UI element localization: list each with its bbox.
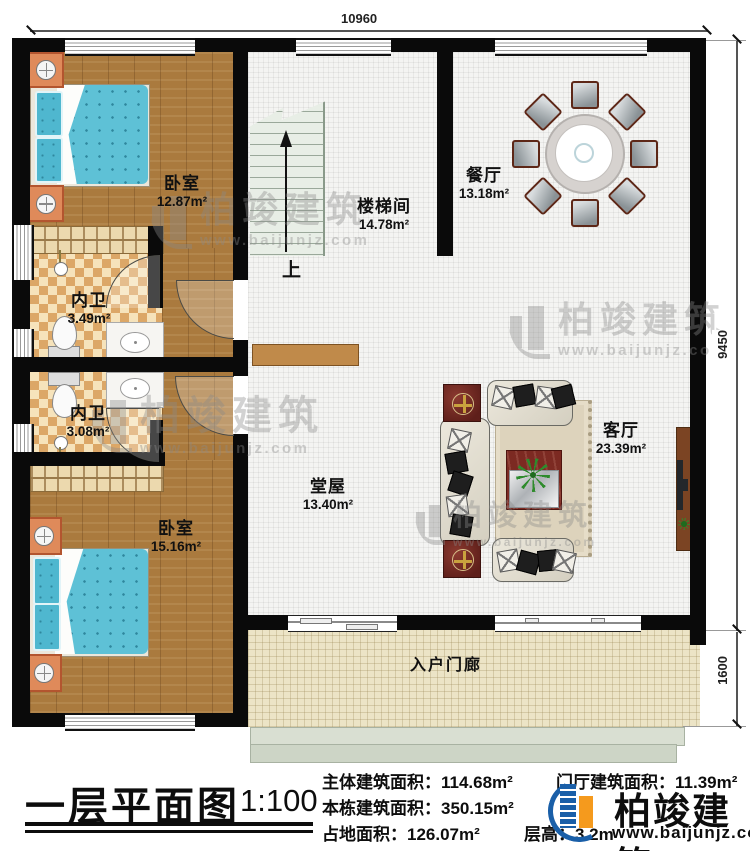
room-area: 15.16m² — [151, 539, 201, 555]
bed-bedroom1 — [30, 84, 150, 187]
stat-building-area: 本栋建筑面积：350.15m² — [322, 794, 514, 819]
bed-bedroom2 — [28, 548, 149, 657]
room-name: 入户门廊 — [410, 657, 482, 675]
room-area: 13.18m² — [459, 186, 509, 202]
lamp-icon — [36, 60, 56, 80]
sofa-pillow — [512, 383, 536, 407]
dimension-right-main-value: 9450 — [712, 330, 733, 359]
window-line — [495, 622, 641, 624]
bath1-drain-icon — [54, 262, 68, 276]
logo-tower-orange — [579, 796, 593, 828]
nightstand — [28, 52, 64, 88]
wall — [12, 713, 65, 727]
wall — [233, 52, 248, 280]
dining-chair — [571, 199, 599, 227]
room-name: 客厅 — [596, 421, 646, 441]
wall — [641, 615, 706, 630]
window-handle — [591, 618, 605, 623]
sliding-door-leaf — [300, 618, 332, 624]
room-name: 堂屋 — [303, 477, 353, 497]
console-table — [252, 344, 359, 366]
room-label-stairwell: 楼梯间 14.78m² — [357, 197, 411, 232]
wall — [437, 52, 453, 256]
room-label-hall: 堂屋 13.40m² — [303, 477, 353, 512]
stat-value: 114.68m² — [441, 773, 513, 792]
dining-chair — [630, 140, 658, 168]
brand-logo-icon — [548, 776, 612, 840]
stat-label: 占地面积： — [322, 825, 407, 844]
room-area: 3.08m² — [67, 424, 110, 440]
wall — [248, 615, 288, 630]
room-area: 14.78m² — [357, 217, 411, 233]
pillow — [33, 603, 61, 651]
porch-step-2 — [250, 744, 677, 763]
wall — [12, 280, 30, 329]
sofa-pillow — [447, 428, 472, 453]
window — [12, 329, 34, 357]
window — [12, 225, 34, 280]
dimension-line-right-porch — [736, 632, 738, 726]
wardrobe-bedroom2 — [30, 464, 164, 492]
tv-stand — [683, 479, 688, 491]
wall — [690, 38, 706, 645]
nightstand — [26, 517, 62, 555]
room-area: 12.87m² — [157, 194, 207, 210]
window — [65, 713, 195, 731]
room-label-bedroom2: 卧室 15.16m² — [151, 519, 201, 554]
wall — [391, 38, 495, 52]
porch-floor — [248, 630, 700, 727]
pillow — [35, 137, 63, 183]
dining-chair — [512, 140, 540, 168]
room-area: 23.39m² — [596, 441, 646, 457]
room-name: 卧室 — [151, 519, 201, 539]
plant-icon — [516, 458, 550, 492]
stairs-up-label: 上 — [282, 255, 301, 282]
room-label-bath2: 内卫 3.08m² — [67, 404, 110, 439]
dimension-top-value: 10960 — [338, 11, 380, 26]
dimension-line-top — [30, 30, 708, 32]
floor-plan-page: 上 — [0, 0, 750, 851]
wall — [195, 38, 296, 52]
bath1-sink-icon — [120, 332, 150, 353]
entry-sliding-door — [288, 615, 397, 632]
room-name: 餐厅 — [459, 166, 509, 186]
window — [495, 38, 647, 56]
title-block: 一层平面图 1:100 主体建筑面积：114.68m² 本栋建筑面积：350.1… — [0, 763, 750, 851]
sofa-pillow — [552, 549, 577, 574]
stat-value: 350.15m² — [441, 799, 514, 818]
pillow — [33, 557, 61, 605]
window-to-porch — [495, 615, 641, 632]
dining-chair — [571, 81, 599, 109]
wall — [12, 38, 30, 225]
stairs — [250, 100, 325, 256]
sofa-pillow — [449, 513, 473, 537]
stat-label: 主体建筑面积： — [322, 773, 441, 792]
compass-motif-icon — [452, 549, 474, 571]
room-name: 内卫 — [67, 404, 110, 424]
extension-line — [683, 726, 746, 727]
room-area: 3.49m² — [68, 311, 111, 327]
small-plant-icon — [678, 518, 690, 530]
plan-scale: 1:100 — [240, 783, 318, 819]
stat-main-area: 主体建筑面积：114.68m² — [322, 768, 513, 793]
brand-url: www.baijunjz.com — [612, 823, 750, 843]
room-area: 13.40m² — [303, 497, 353, 513]
room-name: 内卫 — [68, 291, 111, 311]
stat-value: 126.07m² — [407, 825, 480, 844]
sliding-door-leaf — [346, 624, 378, 630]
lamp-icon — [34, 526, 54, 546]
wardrobe-bedroom1 — [30, 226, 164, 254]
wall — [233, 434, 248, 727]
stairs-up-arrow-icon — [280, 130, 292, 147]
window-handle — [525, 618, 539, 623]
bath2-sink-icon — [120, 378, 150, 399]
title-underline — [25, 822, 313, 826]
room-label-dining: 餐厅 13.18m² — [459, 166, 509, 201]
logo-tower-blue — [560, 784, 576, 828]
nightstand — [26, 654, 62, 692]
nightstand — [28, 185, 64, 222]
compass-motif-icon — [452, 393, 474, 415]
dimension-line-right-main — [736, 41, 738, 631]
wall — [12, 357, 248, 372]
dining-table-center — [574, 143, 594, 163]
stat-label: 本栋建筑面积： — [322, 799, 441, 818]
room-name: 楼梯间 — [357, 197, 411, 217]
pillow — [35, 91, 63, 137]
window — [296, 38, 391, 56]
side-table — [443, 540, 481, 578]
stairs-up-arrow-line — [285, 146, 287, 252]
stat-footprint-area: 占地面积：126.07m² — [322, 820, 480, 845]
room-label-porch: 入户门廊 — [410, 657, 482, 675]
dimension-right-porch-value: 1600 — [712, 656, 733, 685]
window — [12, 424, 34, 452]
title-underline — [25, 830, 313, 833]
lamp-icon — [34, 663, 54, 683]
room-label-bedroom1: 卧室 12.87m² — [157, 174, 207, 209]
room-label-living: 客厅 23.39m² — [596, 421, 646, 456]
room-label-bath1: 内卫 3.49m² — [68, 291, 111, 326]
window — [65, 38, 195, 56]
side-table — [443, 384, 481, 422]
wall — [397, 615, 495, 630]
lamp-icon — [36, 194, 56, 214]
room-name: 卧室 — [157, 174, 207, 194]
wall — [12, 452, 30, 727]
